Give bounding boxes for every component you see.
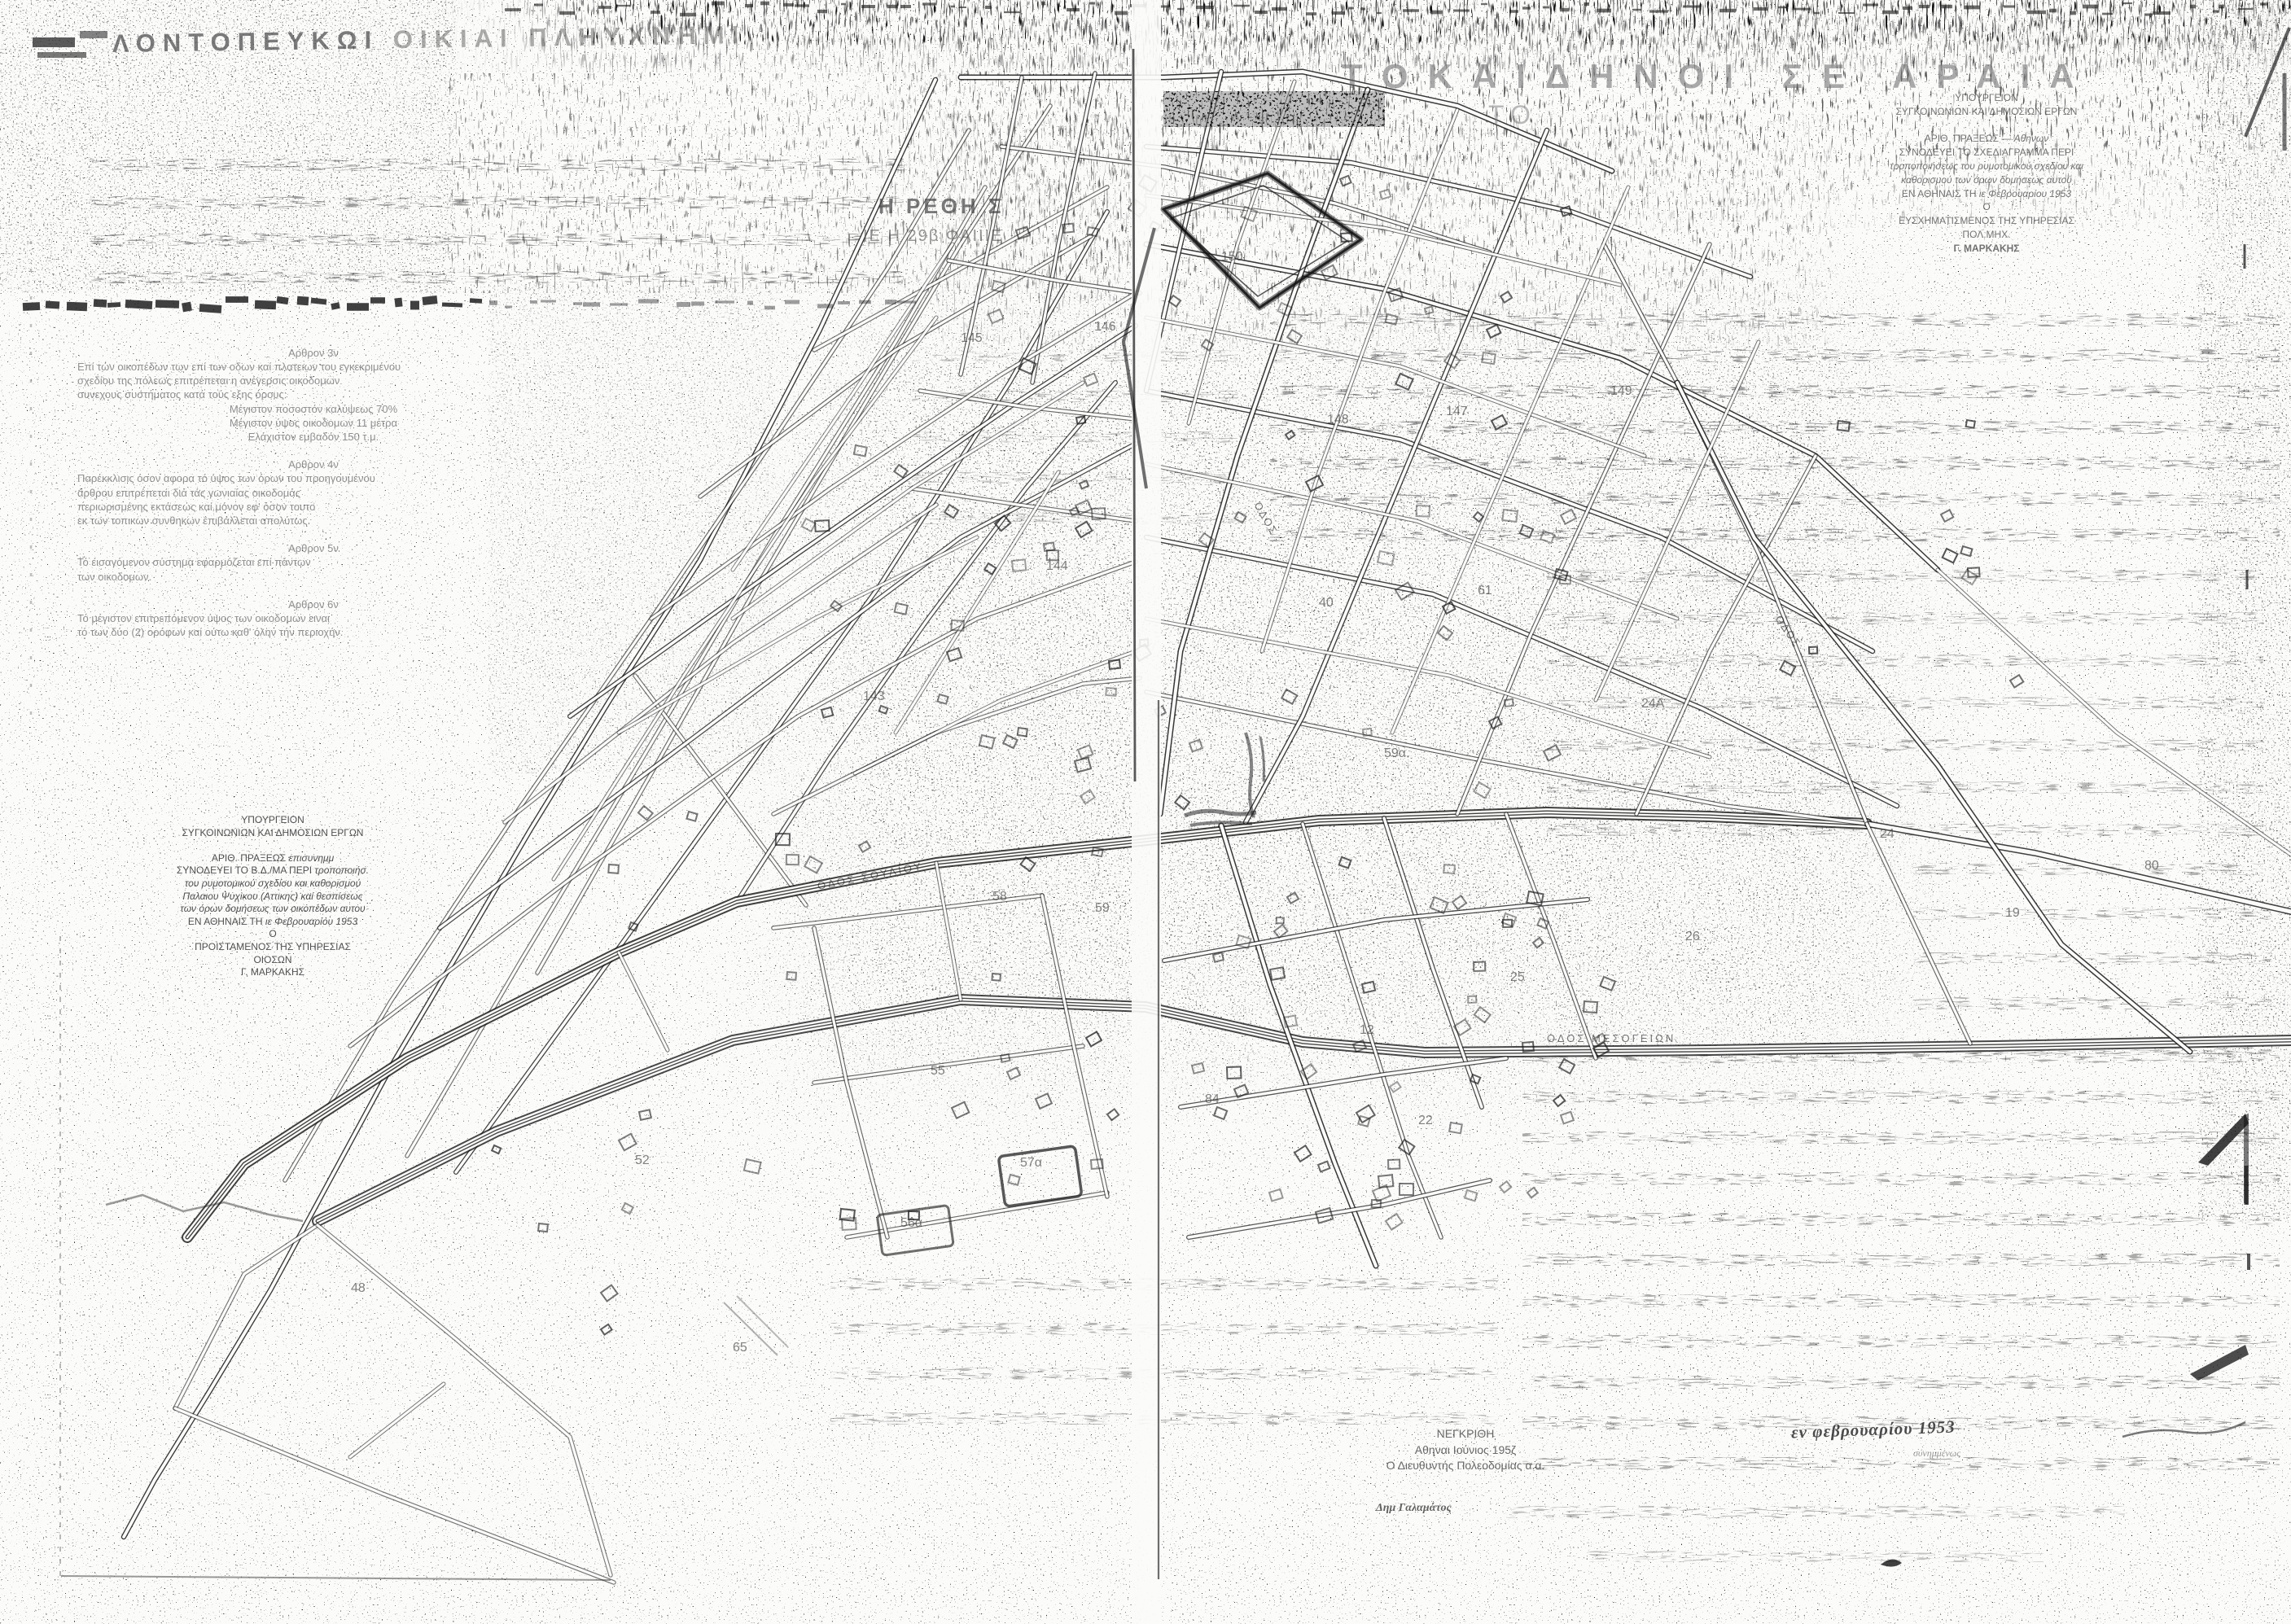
svg-text:ΙΕ Η 29β ΦΑΙΙΙΕ: ΙΕ Η 29β ΦΑΙΙΙΕ bbox=[863, 227, 1004, 245]
svg-text:Η ΡΕΘΗ Σ: Η ΡΕΘΗ Σ bbox=[878, 194, 1005, 218]
